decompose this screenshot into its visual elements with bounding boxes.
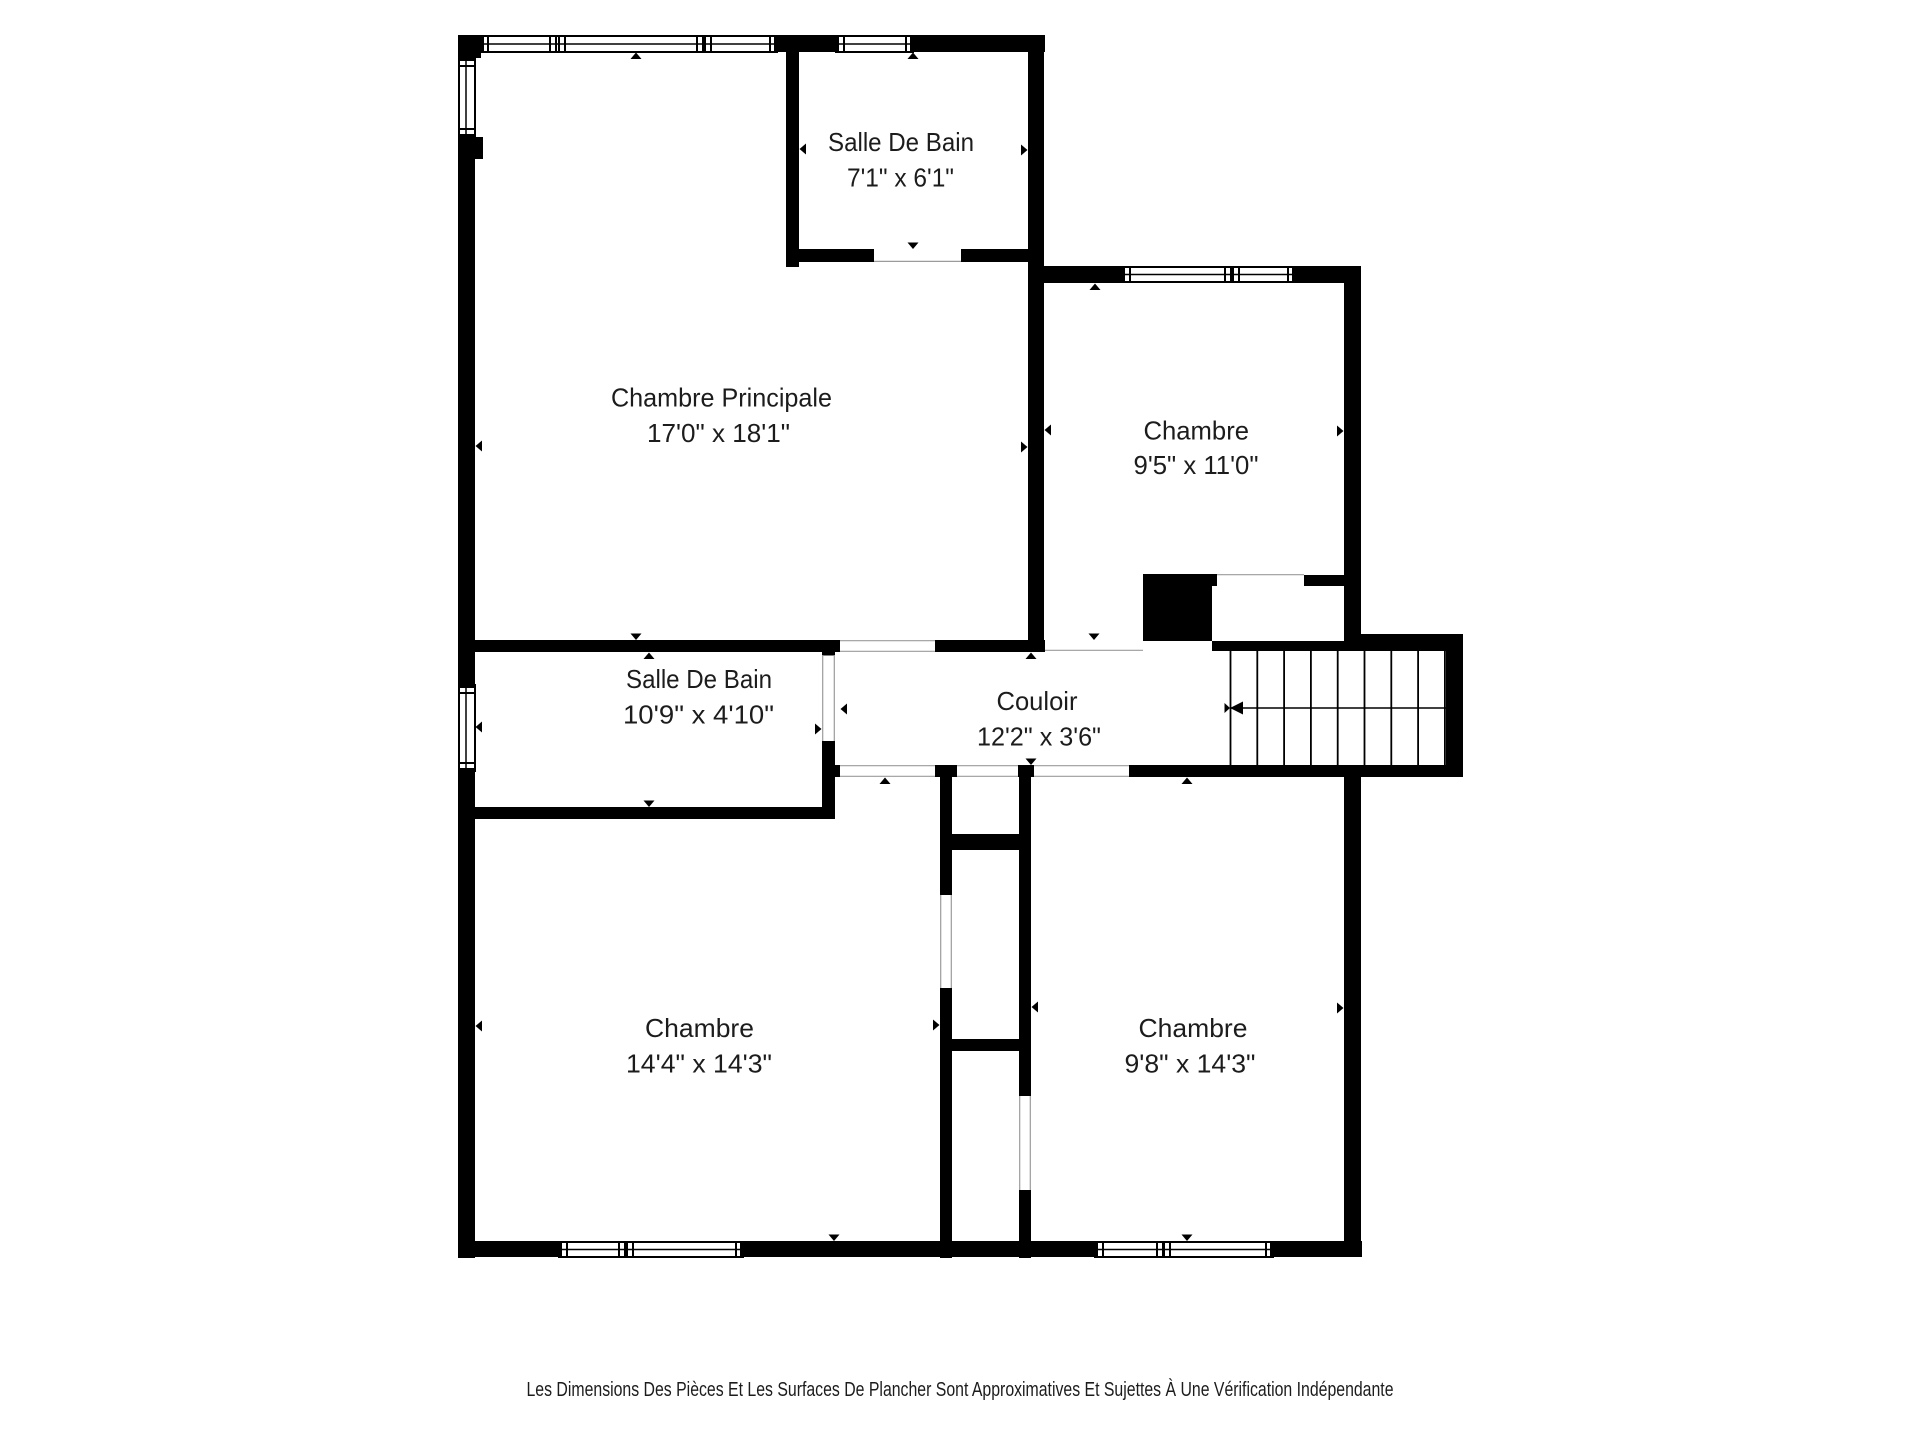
- svg-text:Couloir: Couloir: [997, 686, 1078, 716]
- svg-text:14'4" x 14'3": 14'4" x 14'3": [626, 1049, 772, 1079]
- svg-text:Salle De Bain: Salle De Bain: [828, 127, 974, 157]
- svg-text:Salle De Bain: Salle De Bain: [626, 664, 772, 694]
- svg-text:9'5" x 11'0": 9'5" x 11'0": [1134, 450, 1259, 480]
- svg-text:Chambre: Chambre: [645, 1013, 754, 1043]
- svg-text:Chambre: Chambre: [1139, 1013, 1248, 1043]
- svg-text:7'1" x 6'1": 7'1" x 6'1": [847, 163, 954, 193]
- svg-text:12'2" x 3'6": 12'2" x 3'6": [977, 722, 1101, 752]
- svg-text:9'8" x 14'3": 9'8" x 14'3": [1125, 1049, 1256, 1079]
- svg-text:Les Dimensions Des Pièces Et L: Les Dimensions Des Pièces Et Les Surface…: [527, 1378, 1394, 1401]
- svg-text:Chambre Principale: Chambre Principale: [611, 383, 832, 413]
- svg-text:17'0" x 18'1": 17'0" x 18'1": [647, 418, 790, 448]
- svg-text:10'9" x 4'10": 10'9" x 4'10": [623, 700, 774, 730]
- svg-text:Chambre: Chambre: [1144, 416, 1250, 446]
